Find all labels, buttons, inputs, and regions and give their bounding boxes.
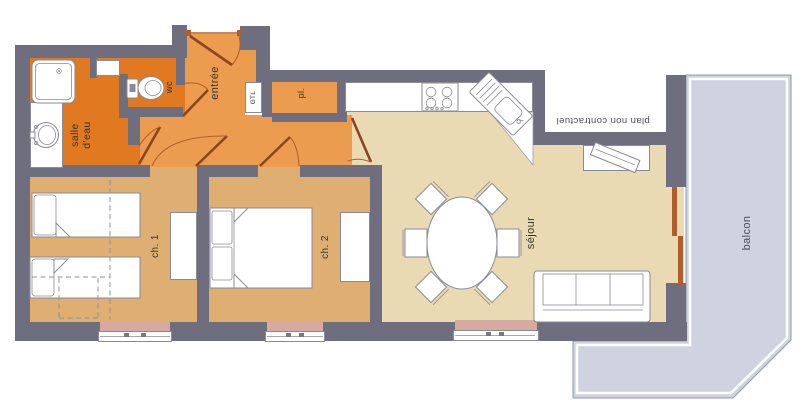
floor-plan: salle d'eau wc entrée GTL pl. ch. 1 ch. … (0, 0, 800, 418)
room-label-wc: wc (160, 72, 180, 102)
wall-segment (172, 25, 187, 58)
wall-segment (197, 165, 209, 326)
room-label-ch2: ch. 2 (319, 229, 333, 265)
room-label-sejour: séjour (523, 211, 539, 255)
room-label-entree: entrée (207, 53, 223, 113)
hall-floor (138, 115, 352, 167)
label-balcon: balcon (739, 211, 755, 255)
window-ch2 (265, 331, 325, 342)
wardrobe-ch1 (170, 212, 197, 280)
wardrobe-ch2 (340, 212, 370, 282)
window-sejour (453, 330, 539, 341)
label-disclaimer: plan non contractuel (543, 113, 663, 127)
wall-segment (15, 45, 30, 341)
wall-segment (262, 70, 545, 82)
wall-segment (119, 107, 183, 117)
wall-segment (262, 82, 272, 117)
room-label-salle-deau: salle d'eau (59, 120, 103, 150)
wall-segment (128, 117, 140, 145)
label-gtl: GTL (247, 85, 260, 110)
window-ch1 (98, 331, 172, 342)
wall-segment (666, 75, 686, 187)
wall-segment (272, 113, 340, 122)
room-placard-floor (272, 80, 345, 115)
room-sejour-floor-right (537, 145, 684, 326)
room-label-ch1: ch. 1 (149, 228, 163, 264)
wc-cistern (96, 60, 120, 76)
wall-segment (370, 165, 382, 326)
wall-segment (537, 132, 668, 145)
wall-segment (240, 26, 270, 50)
tv-cabinet (583, 145, 650, 171)
wall-segment (15, 45, 178, 58)
room-label-placard: pl. (295, 83, 307, 103)
kitchen-counter (345, 82, 533, 112)
